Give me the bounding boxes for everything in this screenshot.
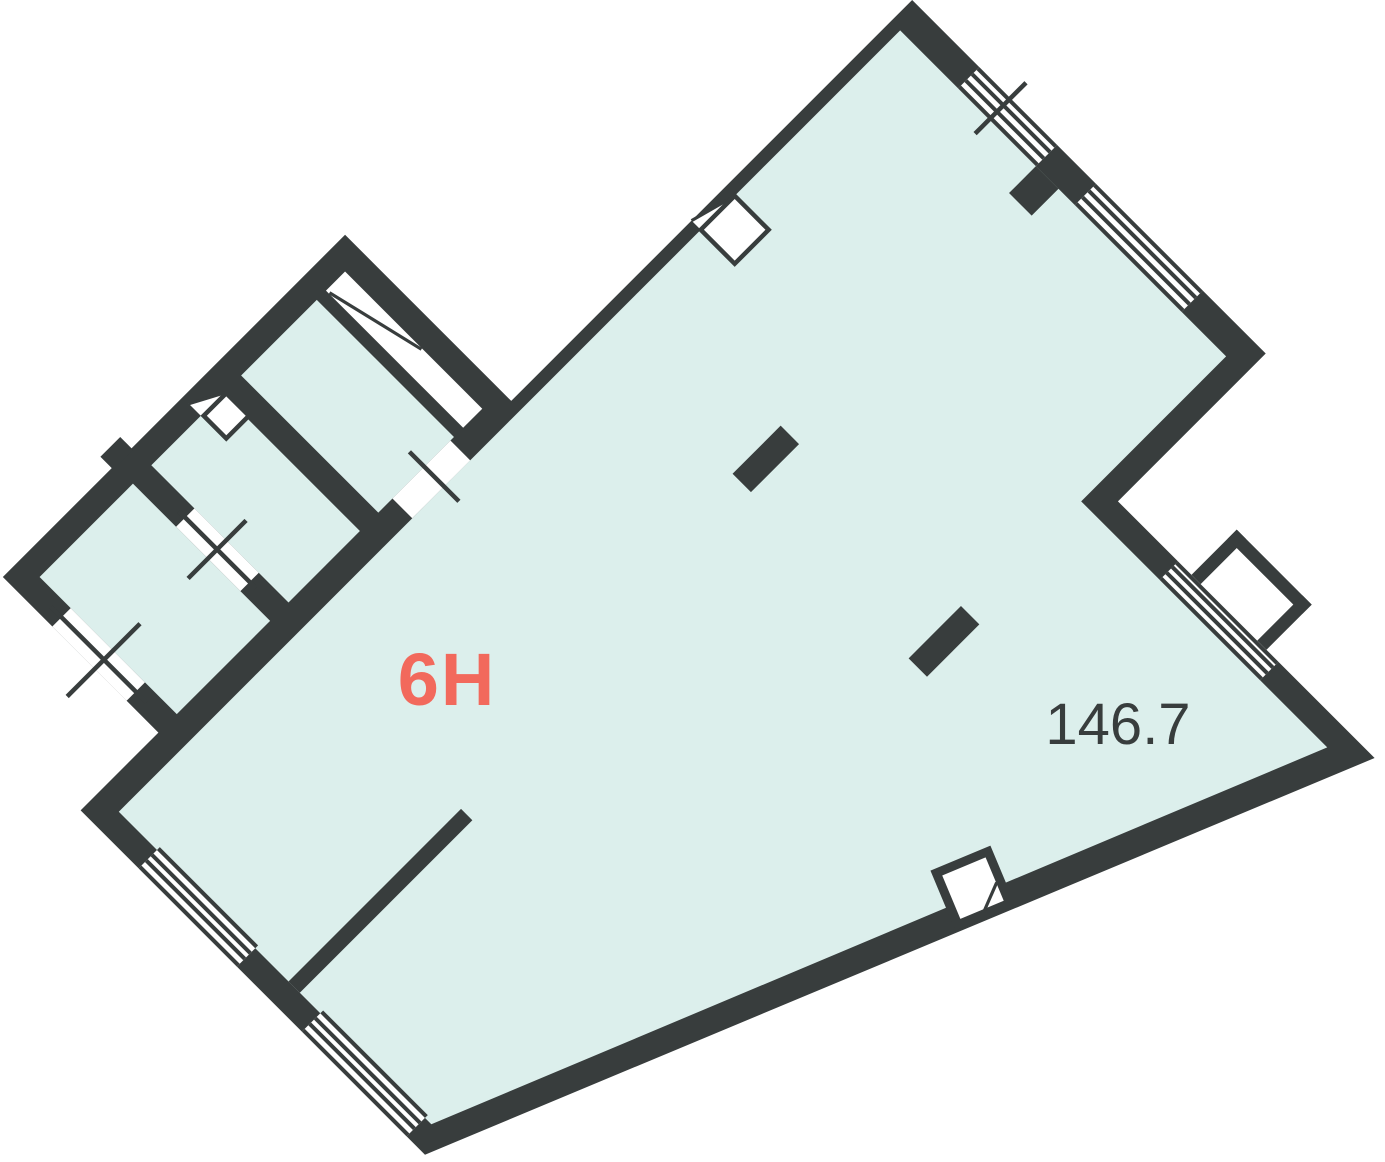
floor-plan-page: 6Н 146.7 bbox=[0, 0, 1385, 1162]
floor-plan: 6Н 146.7 bbox=[0, 0, 1385, 1162]
unit-label: 6Н bbox=[398, 638, 497, 721]
area-label: 146.7 bbox=[1045, 692, 1190, 757]
plan-rotated-frame bbox=[0, 0, 1385, 1162]
